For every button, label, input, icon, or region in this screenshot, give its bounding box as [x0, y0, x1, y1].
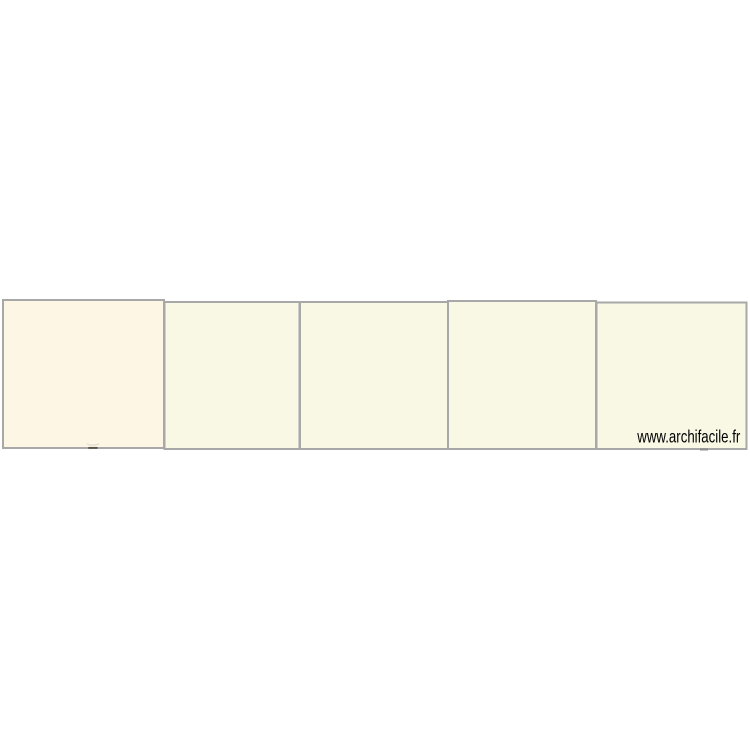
svg-text:www.archifacile.fr: www.archifacile.fr: [637, 427, 741, 447]
